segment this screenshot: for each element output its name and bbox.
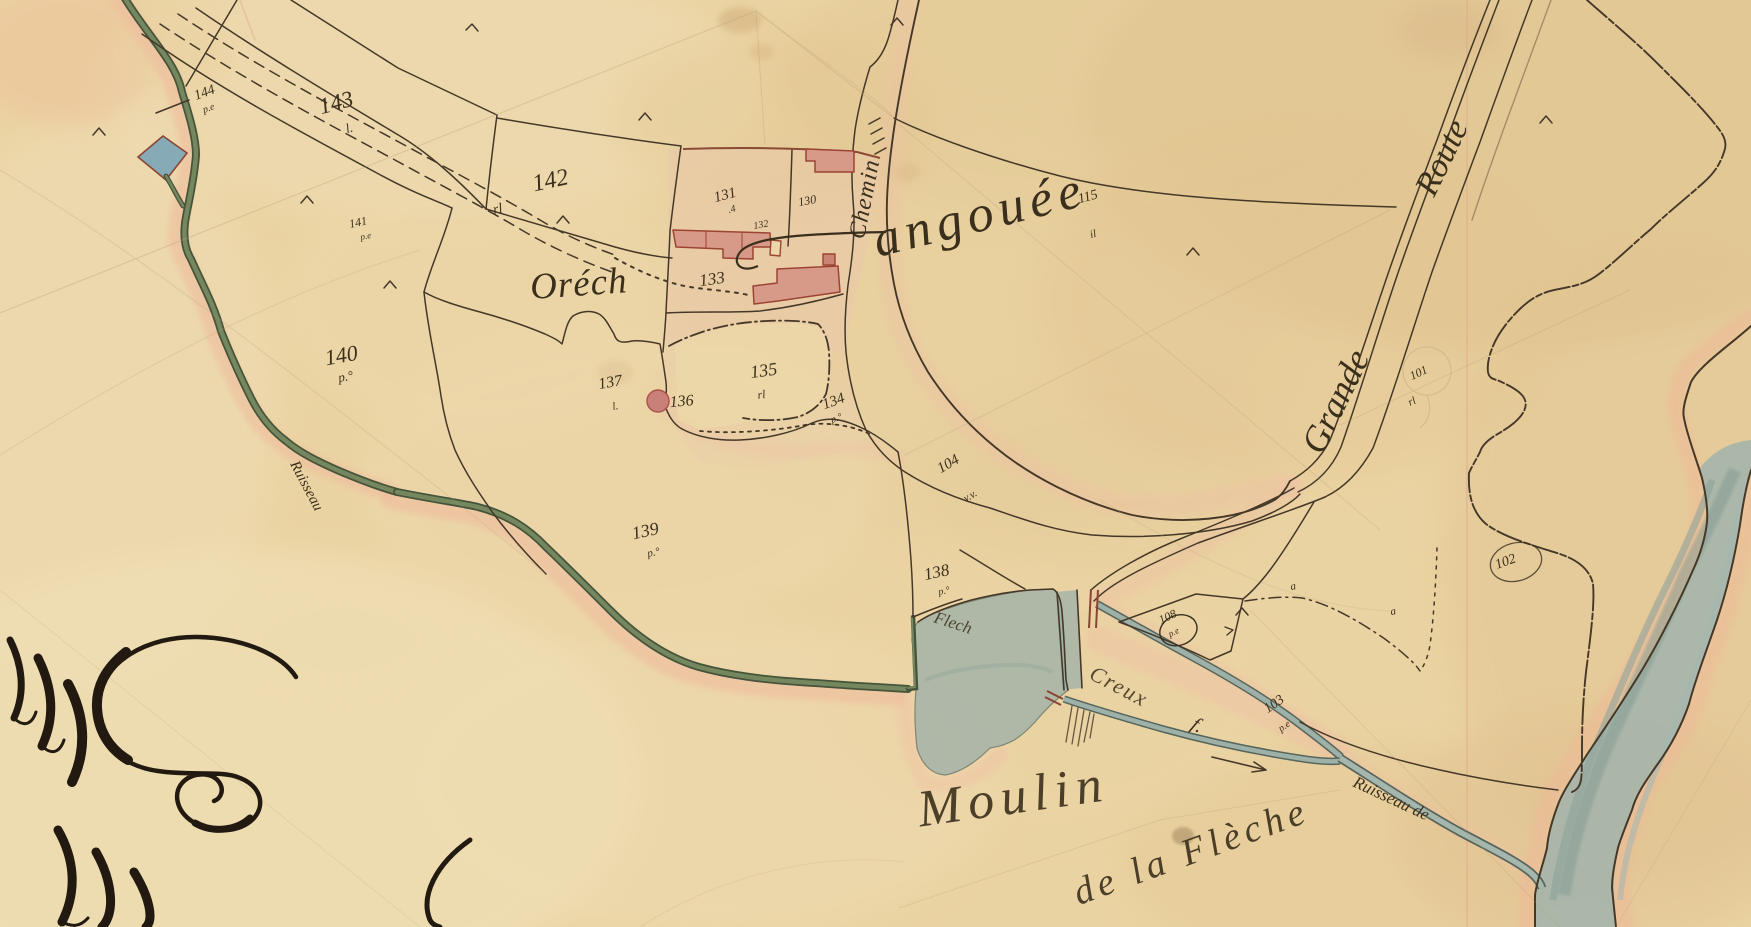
svg-text:135: 135 <box>749 359 779 383</box>
svg-text:136: 136 <box>669 392 694 411</box>
svg-text:133: 133 <box>698 268 726 290</box>
svg-text:p.°: p.° <box>336 368 354 386</box>
svg-text:Oréch: Oréch <box>529 260 629 308</box>
